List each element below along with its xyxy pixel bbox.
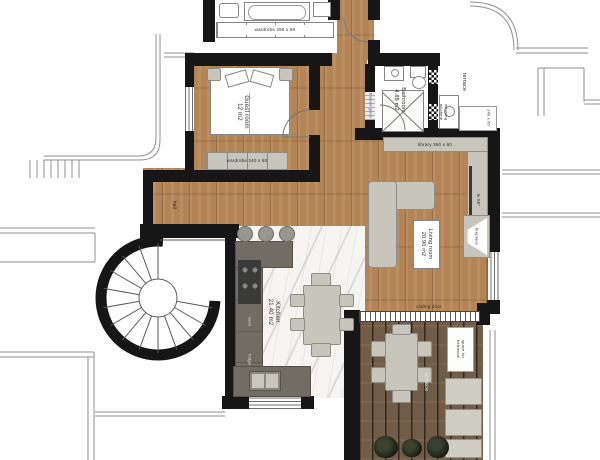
bathroom-door-arc	[380, 105, 405, 130]
door-swings	[0, 0, 600, 460]
hallway-door-arc	[344, 18, 368, 42]
floor-plan: wardrobe 290 x 60 wardrobe 240 x 60 Gues…	[0, 0, 600, 460]
guest-room-door-arc	[283, 110, 310, 137]
shower-glass-cross	[382, 92, 424, 132]
